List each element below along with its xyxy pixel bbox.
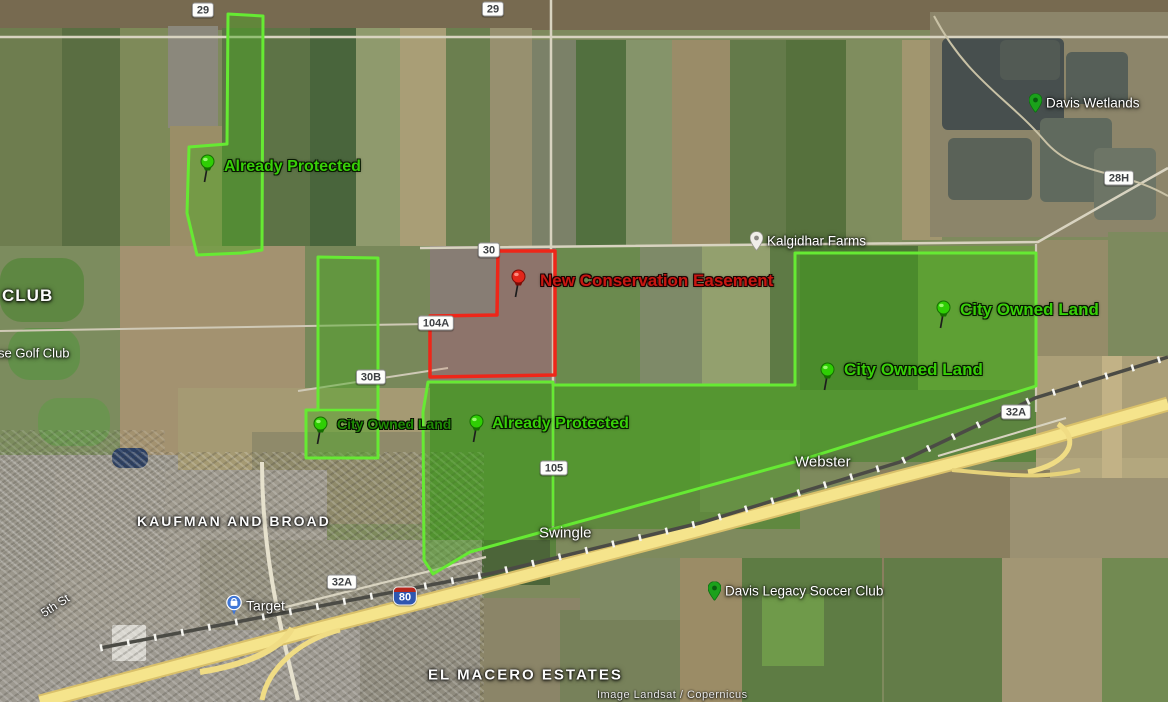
placemark-label-new-conservation-easement[interactable]: New Conservation Easement <box>540 271 773 291</box>
place-label-kaufman-broad: KAUFMAN AND BROAD <box>137 513 331 529</box>
place-label-text: se Golf Club <box>0 346 70 361</box>
pushpin-icon-city-owned-land-mid[interactable] <box>817 362 839 397</box>
pushpin-icon-new-conservation-easement[interactable] <box>508 269 530 304</box>
placemark-label-already-protected-nw[interactable]: Already Protected <box>224 158 361 176</box>
parcel-overlays-layer <box>0 0 1168 702</box>
pushpin-icon-already-protected-central[interactable] <box>466 414 488 449</box>
place-label-text: KAUFMAN AND BROAD <box>137 513 331 529</box>
place-label-swingle: Swingle <box>539 525 592 542</box>
imagery-attribution: Image Landsat / Copernicus <box>597 689 748 701</box>
place-label-text: Target <box>246 597 285 613</box>
place-label-webster: Webster <box>795 454 851 471</box>
satellite-map-view: 292930104A30B10532A32A28H80 CLUBse Golf … <box>0 0 1168 702</box>
road-shield-28h: 28H <box>1104 171 1134 186</box>
place-label-text: Davis Legacy Soccer Club <box>725 584 883 599</box>
place-label-text: Webster <box>795 454 851 471</box>
green-poi-pin-icon[interactable] <box>708 582 721 601</box>
road-shield-30b: 30B <box>356 370 386 385</box>
place-label-club: CLUB <box>2 286 53 306</box>
place-label-golf-club: se Golf Club <box>0 346 70 361</box>
pushpin-icon-city-owned-land-small[interactable] <box>310 416 332 451</box>
place-label-text: Swingle <box>539 525 592 542</box>
place-label-text: Davis Wetlands <box>1046 96 1140 111</box>
road-shield-32a: 32A <box>1001 405 1031 420</box>
placemark-label-city-owned-land-small[interactable]: City Owned Land <box>337 416 451 432</box>
place-label-kalgidhar-farms[interactable]: Kalgidhar Farms <box>750 232 866 251</box>
gray-poi-pin-icon[interactable] <box>750 232 763 251</box>
place-label-target[interactable]: Target <box>226 595 285 616</box>
green-poi-pin-icon[interactable] <box>1029 94 1042 113</box>
place-label-soccer-club[interactable]: Davis Legacy Soccer Club <box>708 582 883 601</box>
road-shield-105: 105 <box>540 461 568 476</box>
pushpin-icon-city-owned-land-east[interactable] <box>933 300 955 335</box>
pushpin-icon-already-protected-nw[interactable] <box>197 154 219 189</box>
place-label-text: Kalgidhar Farms <box>767 234 866 249</box>
road-shield-30: 30 <box>478 243 500 258</box>
target-store-pin-icon[interactable] <box>226 595 242 616</box>
road-shield-29: 29 <box>192 3 214 18</box>
place-label-text: CLUB <box>2 286 53 306</box>
overlay-polygon-already-protected-nw[interactable] <box>187 14 263 255</box>
place-label-davis-wetlands[interactable]: Davis Wetlands <box>1029 94 1140 113</box>
place-label-el-macero: EL MACERO ESTATES <box>428 667 623 684</box>
road-shield-104a: 104A <box>418 316 454 331</box>
road-shield-80-interstate: 80 <box>393 587 417 606</box>
place-label-text: EL MACERO ESTATES <box>428 667 623 684</box>
overlay-polygon-new-conservation-easement[interactable] <box>430 251 555 377</box>
road-shield-32a: 32A <box>327 575 357 590</box>
placemark-label-already-protected-central[interactable]: Already Protected <box>492 415 629 433</box>
placemark-label-city-owned-land-mid[interactable]: City Owned Land <box>844 360 983 380</box>
placemark-label-city-owned-land-east[interactable]: City Owned Land <box>960 300 1099 320</box>
road-shield-29: 29 <box>482 2 504 17</box>
